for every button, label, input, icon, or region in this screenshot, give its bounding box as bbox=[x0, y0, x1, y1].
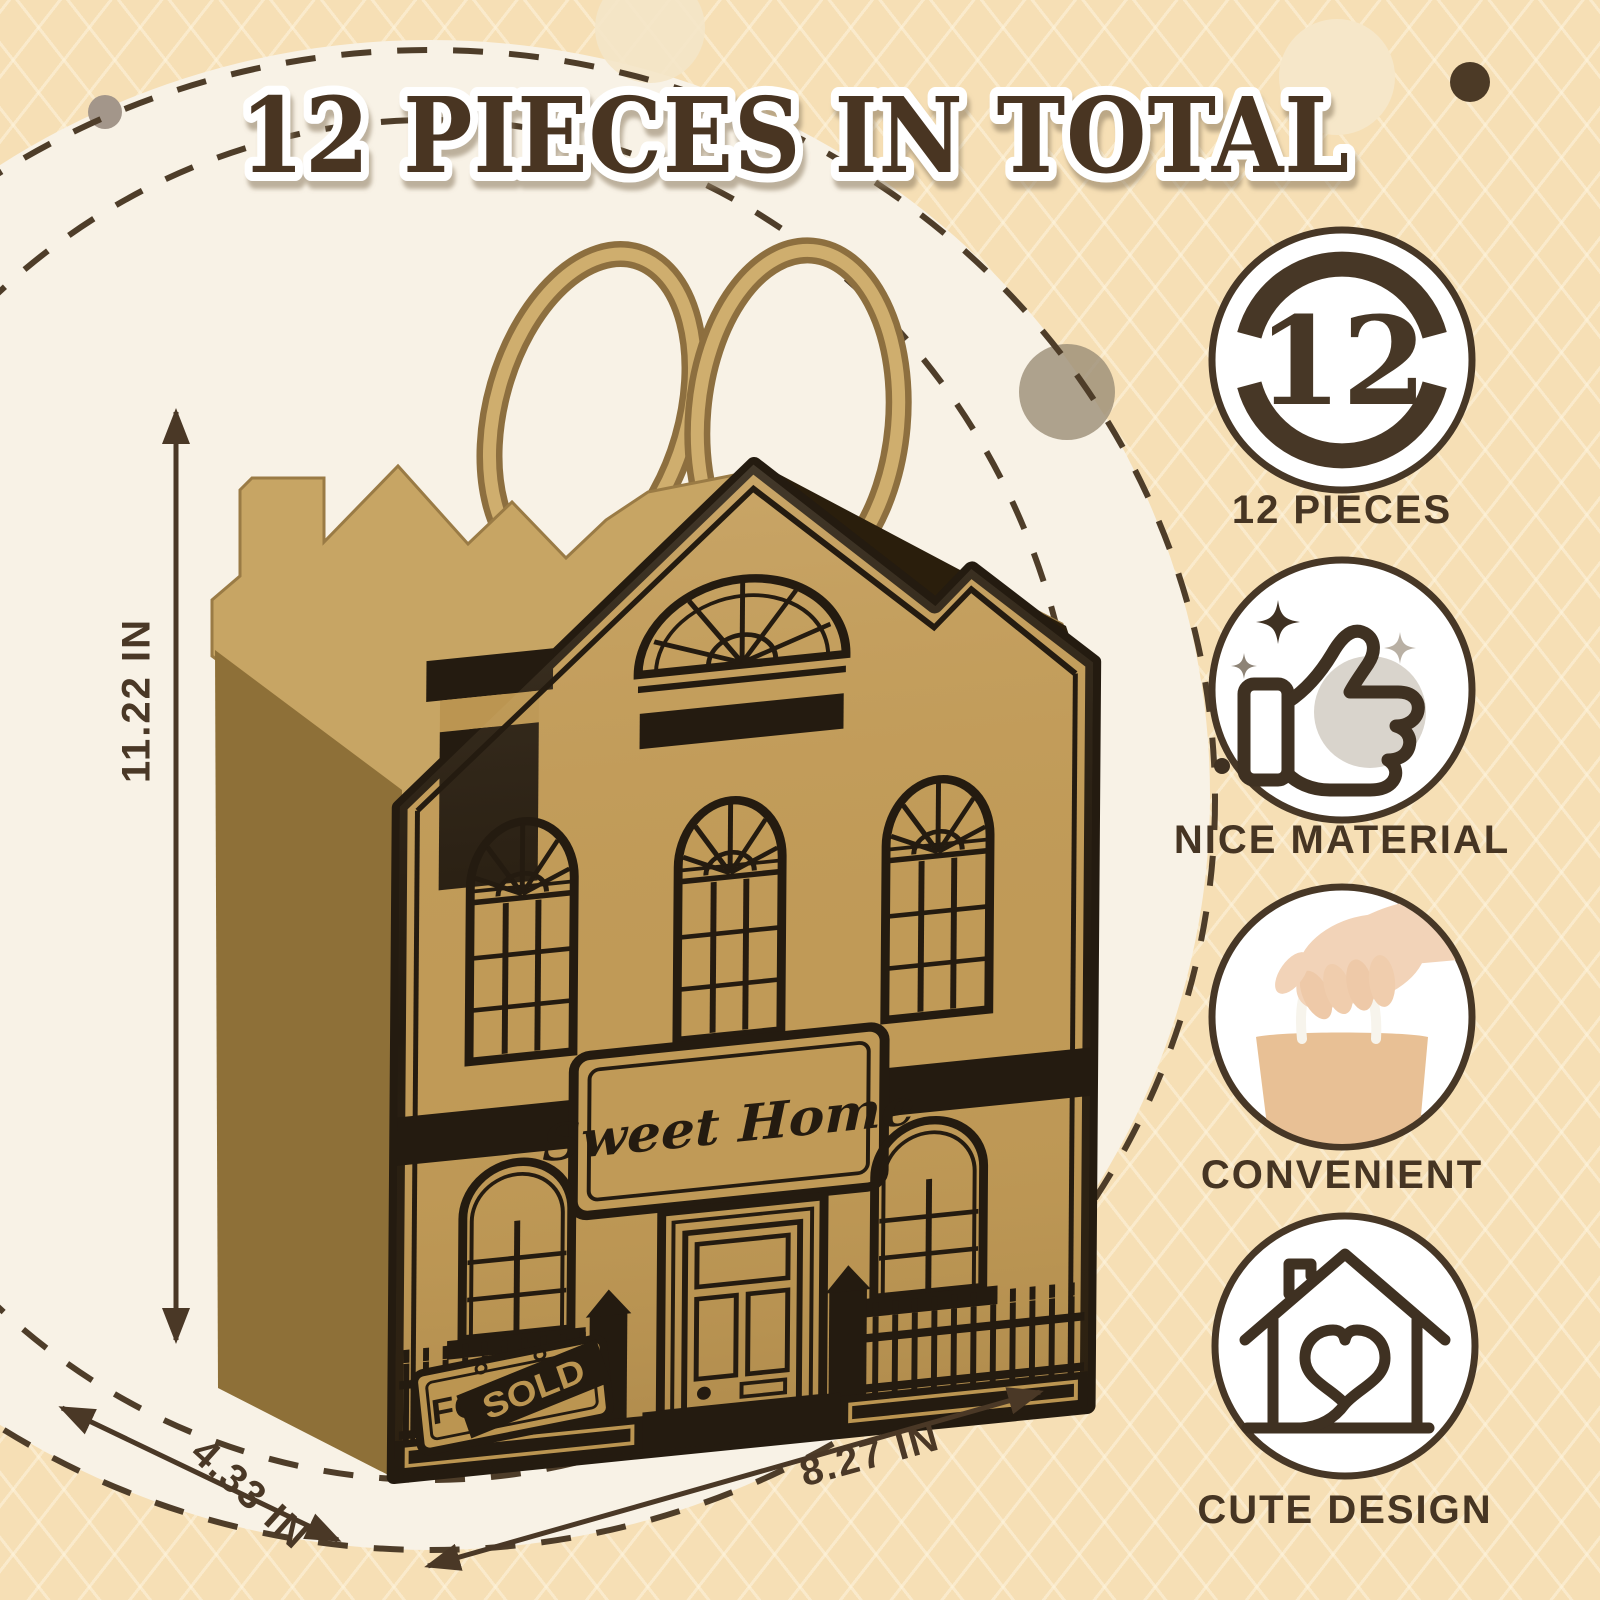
feature-nice-material bbox=[1202, 550, 1482, 830]
feature-label-material: NICE MATERIAL bbox=[1152, 818, 1532, 863]
feature-convenient bbox=[1202, 877, 1482, 1157]
feature-cute-design bbox=[1205, 1206, 1485, 1486]
product-infographic: Sweet Home bbox=[0, 0, 1600, 1600]
page-title: 12 PIECES IN TOTAL bbox=[240, 74, 1350, 197]
feature-label-convenient: CONVENIENT bbox=[1152, 1153, 1532, 1198]
count-12-badge-icon: 12 bbox=[1249, 264, 1434, 456]
feature-label-design: CUTE DESIGN bbox=[1155, 1488, 1535, 1533]
height-dimension-label: 11.22 IN bbox=[115, 551, 160, 851]
feature-label-pieces: 12 PIECES bbox=[1152, 488, 1532, 533]
badge-count: 12 bbox=[1257, 289, 1427, 433]
feature-count-badge: 12 bbox=[1202, 220, 1482, 500]
